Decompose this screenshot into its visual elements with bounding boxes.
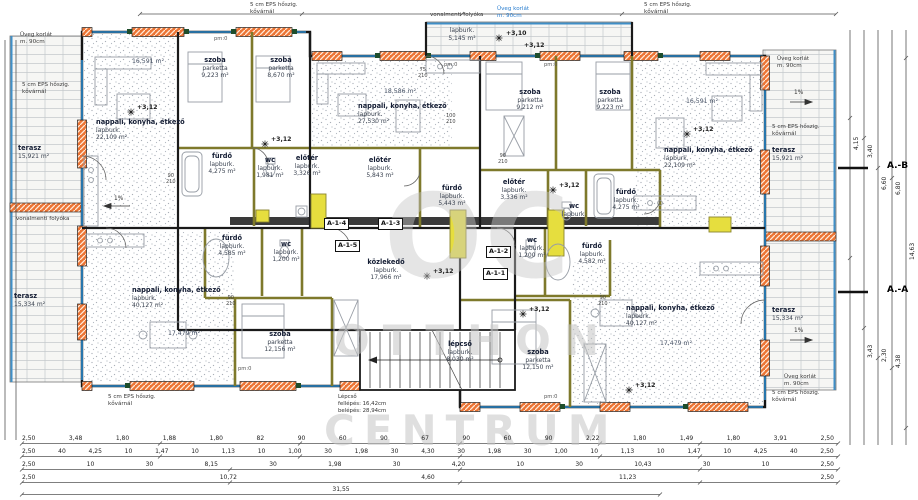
parapet-label: pm:0 xyxy=(544,62,557,68)
door-size-label: 90 210 xyxy=(226,296,236,307)
unit-tag-a-1-3: A-1-3 xyxy=(378,218,403,230)
dimension-value: 90 xyxy=(380,435,388,442)
room-label-balcony: lapburk.5,145 m² xyxy=(448,27,475,43)
dimension-value: 2,50 xyxy=(22,435,35,442)
dimension-value: 30 xyxy=(575,461,583,468)
room-label-living-tc: nappali, konyha, étkezőlapburk.27,530 m² xyxy=(358,102,447,126)
dimension-vertical: 3,40 xyxy=(867,145,874,158)
room-label-terasz-r1: terasz15,921 m² xyxy=(772,146,803,162)
area-note: 17,479 m² xyxy=(660,340,692,347)
room-label-wc-br: wclapburk.1,200 m² xyxy=(518,236,545,260)
room-label-szoba-br: szobaparketta12,150 m² xyxy=(522,348,553,372)
dimension-value: 10 xyxy=(723,448,731,455)
level-marker: +3,10 xyxy=(506,30,526,37)
door-size-label: 90 210 xyxy=(166,174,176,185)
room-label-furdo-tc: fürdőlapburk.5,443 m² xyxy=(438,184,465,208)
parapet-label: pm:0 xyxy=(544,394,557,400)
door-size-label: 100 210 xyxy=(446,114,456,125)
room-label-szoba-tl2: szobaparketta8,670 m² xyxy=(267,56,294,80)
room-label-stairs: lépcsőlapburk.8,030 m² xyxy=(446,340,473,364)
unit-tag-a-1-5: A-1-5 xyxy=(335,240,360,252)
dimension-value: 10 xyxy=(657,448,665,455)
area-note: 16,591 m² xyxy=(686,98,718,105)
dimension-value: 1,80 xyxy=(727,435,740,442)
dimension-row-2: 2,50404,25101,47101,13101,00301,98304,30… xyxy=(22,448,834,455)
dimension-value: 67 xyxy=(421,435,429,442)
room-label-terasz-r2: terasz15,334 m² xyxy=(772,306,803,322)
dimension-row-total: 31,55 xyxy=(22,486,660,493)
dimension-value: 10 xyxy=(762,461,770,468)
dimension-value: 1,49 xyxy=(680,435,693,442)
dimension-value: 1,00 xyxy=(554,448,567,455)
room-label-corridor: közlekedőlapburk.17,966 m² xyxy=(367,258,404,282)
dimension-value: 4,25 xyxy=(754,448,767,455)
dimension-value: 1,80 xyxy=(210,435,223,442)
dimension-vertical: 2,30 xyxy=(881,349,888,362)
dimension-value: 1,47 xyxy=(687,448,700,455)
room-label-living-tl: nappali, konyha, étkezőlapburk.22,109 m² xyxy=(96,118,185,142)
dimension-value: 30 xyxy=(391,448,399,455)
room-label-szoba-tl1: szobaparketta9,223 m² xyxy=(201,56,228,80)
dimension-value: 11,23 xyxy=(619,474,636,481)
dimension-value: 4,25 xyxy=(89,448,102,455)
dimension-value: 1,13 xyxy=(222,448,235,455)
room-label-szoba-bl: szobaparketta12,156 m² xyxy=(264,330,295,354)
level-marker: +3,12 xyxy=(137,104,157,111)
note-eps-insulation: 5 cm EPS hőszig. kővárnál xyxy=(772,390,820,404)
dimension-value: 2,50 xyxy=(821,474,834,481)
dimension-value: 60 xyxy=(504,435,512,442)
room-label-wc-tr: wclapburk. xyxy=(562,202,587,218)
dimension-value: 60 xyxy=(339,435,347,442)
unit-tag-a-1-4: A-1-4 xyxy=(324,218,349,230)
area-note: 16,591 m² xyxy=(132,58,164,65)
note-linear-drain: vonalmenti folyóka xyxy=(430,12,483,19)
dimension-value: 4,60 xyxy=(421,474,434,481)
dimension-value: 10,43 xyxy=(634,461,651,468)
room-label-wc-bl: wclapburk.1,200 m² xyxy=(272,240,299,264)
section-label-ab: A.-B xyxy=(887,161,908,171)
note-glass-railing: Üveg korlát m. 90cm xyxy=(497,6,529,20)
level-marker: +3,12 xyxy=(433,268,453,275)
dimension-value: 3,91 xyxy=(774,435,787,442)
dimension-value: 30 xyxy=(393,461,401,468)
dimension-value: 40 xyxy=(790,448,798,455)
note-eps-insulation: 5 cm EPS hőszig. kővárnál xyxy=(22,82,70,96)
parapet-label: pm:0 xyxy=(214,36,227,42)
dimension-value: 2,50 xyxy=(22,448,35,455)
dimension-value: 10 xyxy=(516,461,524,468)
floor-plan-page: OC OTTHON CENTRUM nappali, konyha, étkez… xyxy=(0,0,918,500)
level-marker: +3,12 xyxy=(559,182,579,189)
dimension-vertical: 14,63 xyxy=(909,243,916,260)
level-marker: +3,12 xyxy=(635,382,655,389)
dimension-value: 1,98 xyxy=(488,448,501,455)
door-size-label: 90 210 xyxy=(598,296,608,307)
dimension-vertical: 6,60 xyxy=(881,177,888,190)
note-glass-railing: Üveg korlát m. 90cm xyxy=(20,32,52,46)
dimension-value: 8,15 xyxy=(205,461,218,468)
level-marker: +3,12 xyxy=(529,306,549,313)
dimension-value: 90 xyxy=(462,435,470,442)
dimension-value: 90 xyxy=(545,435,553,442)
dimension-value: 30 xyxy=(269,461,277,468)
dimension-value: 1,80 xyxy=(116,435,129,442)
dimension-value: 2,50 xyxy=(821,435,834,442)
dimension-value: 1,13 xyxy=(621,448,634,455)
room-label-furdo-tl: fürdőlapburk.4,275 m² xyxy=(208,152,235,176)
dimension-value: 30 xyxy=(524,448,532,455)
dimension-vertical: 4,15 xyxy=(853,137,860,150)
note-glass-railing: Üveg korlát m. 90cm xyxy=(784,374,816,388)
note-eps-insulation: 5 cm EPS hőszig. kővárnál xyxy=(644,2,692,16)
dimension-value: 10,72 xyxy=(220,474,237,481)
dimension-value: 2,22 xyxy=(586,435,599,442)
room-label-szoba-tr2: szobaparketta9,223 m² xyxy=(596,88,623,112)
room-label-living-tr: nappali, konyha, étkezőlapburk.22,109 m² xyxy=(664,146,753,170)
room-label-living-br: nappali, konyha, étkezőlapburk.40,127 m² xyxy=(626,304,715,328)
dimension-value: 10 xyxy=(258,448,266,455)
dimension-value: 82 xyxy=(257,435,265,442)
dimension-value: 10 xyxy=(191,448,199,455)
room-label-eloter-tr: előtérlapburk.3,336 m² xyxy=(500,178,527,202)
room-label-szoba-tr1: szobaparketta9,212 m² xyxy=(516,88,543,112)
dimension-value: 1,47 xyxy=(155,448,168,455)
level-marker: +3,12 xyxy=(271,136,291,143)
slope-label: 1% xyxy=(794,90,803,96)
dimension-value: 90 xyxy=(298,435,306,442)
room-label-eloter-tc: előtérlapburk.5,843 m² xyxy=(366,156,393,180)
section-label-aa: A.-A xyxy=(887,285,908,295)
dimension-value: 1,98 xyxy=(355,448,368,455)
dimension-value: 31,55 xyxy=(332,486,349,493)
dimension-value: 1,80 xyxy=(633,435,646,442)
unit-tag-a-1-1: A-1-1 xyxy=(483,268,508,280)
note-glass-railing: Üveg korlát m. 90cm xyxy=(777,56,809,70)
slope-label: 1% xyxy=(794,328,803,334)
dimension-vertical: 4,38 xyxy=(895,355,902,368)
dimension-value: 1,00 xyxy=(288,448,301,455)
dimension-row-4: 2,5010,724,6011,232,50 xyxy=(22,474,834,481)
dimension-row-1: 2,503,481,801,881,8082906090679060902,22… xyxy=(22,435,834,442)
level-marker: +3,12 xyxy=(693,126,713,133)
door-size-label: 75 210 xyxy=(418,68,428,79)
dimension-value: 4,30 xyxy=(421,448,434,455)
note-eps-insulation: 5 cm EPS hőszig. kővárnál xyxy=(108,394,156,408)
area-note: 17,479 m² xyxy=(168,330,200,337)
dimension-value: 4,20 xyxy=(452,461,465,468)
room-label-furdo-br: fürdőlapburk.4,582 m² xyxy=(578,242,605,266)
level-marker: +3,12 xyxy=(524,42,544,49)
unit-tag-a-1-2: A-1-2 xyxy=(486,246,511,258)
section-marks xyxy=(838,168,868,292)
door-size-label: 90 210 xyxy=(498,154,508,165)
dimension-value: 3,48 xyxy=(69,435,82,442)
note-stair-dimensions: Lépcső fellépés: 16,42cm belépés: 28,94c… xyxy=(338,394,386,415)
room-label-furdo-bl: fürdőlapburk.4,585 m² xyxy=(218,234,245,258)
dimension-value: 10 xyxy=(87,461,95,468)
room-label-living-bl: nappali, konyha, étkezőlapburk.40,127 m² xyxy=(132,286,221,310)
note-linear-drain: vonalmenti folyóka xyxy=(16,216,69,223)
dimension-value: 30 xyxy=(457,448,465,455)
area-note: 18,586 m² xyxy=(384,88,416,95)
dimension-value: 2,50 xyxy=(22,461,35,468)
dimension-value: 40 xyxy=(58,448,66,455)
slope-label: 1% xyxy=(114,196,123,202)
parapet-label: pm:0 xyxy=(238,366,251,372)
dimension-value: 2,50 xyxy=(820,448,833,455)
dimension-value: 30 xyxy=(324,448,332,455)
dimension-value: 1,88 xyxy=(163,435,176,442)
note-eps-insulation: 5 cm EPS hőszig. kővárnál xyxy=(772,124,820,138)
room-label-terasz-l1: terasz15,921 m² xyxy=(18,144,49,160)
dimension-value: 2,50 xyxy=(22,474,35,481)
room-label-eloter-tl: előtérlapburk.3,326 m² xyxy=(293,154,320,178)
dimension-value: 2,50 xyxy=(821,461,834,468)
room-label-furdo-tr: fürdőlapburk.4,275 m² xyxy=(612,188,639,212)
note-eps-insulation: 5 cm EPS hőszig. kővárnál xyxy=(250,2,298,16)
dimension-value: 30 xyxy=(703,461,711,468)
room-label-wc-tl: wclapburk.1,981 m² xyxy=(256,156,283,180)
dimension-value: 1,98 xyxy=(328,461,341,468)
dimension-value: 30 xyxy=(146,461,154,468)
dimension-vertical: 6,80 xyxy=(895,182,902,195)
dimension-vertical: 3,43 xyxy=(867,345,874,358)
dimension-row-3: 2,5010308,15301,98304,20103010,4330102,5… xyxy=(22,461,834,468)
dimension-value: 10 xyxy=(590,448,598,455)
parapet-label: pm:0 xyxy=(444,62,457,68)
dimension-value: 10 xyxy=(125,448,133,455)
room-label-terasz-l2: terasz15,334 m² xyxy=(14,292,45,308)
